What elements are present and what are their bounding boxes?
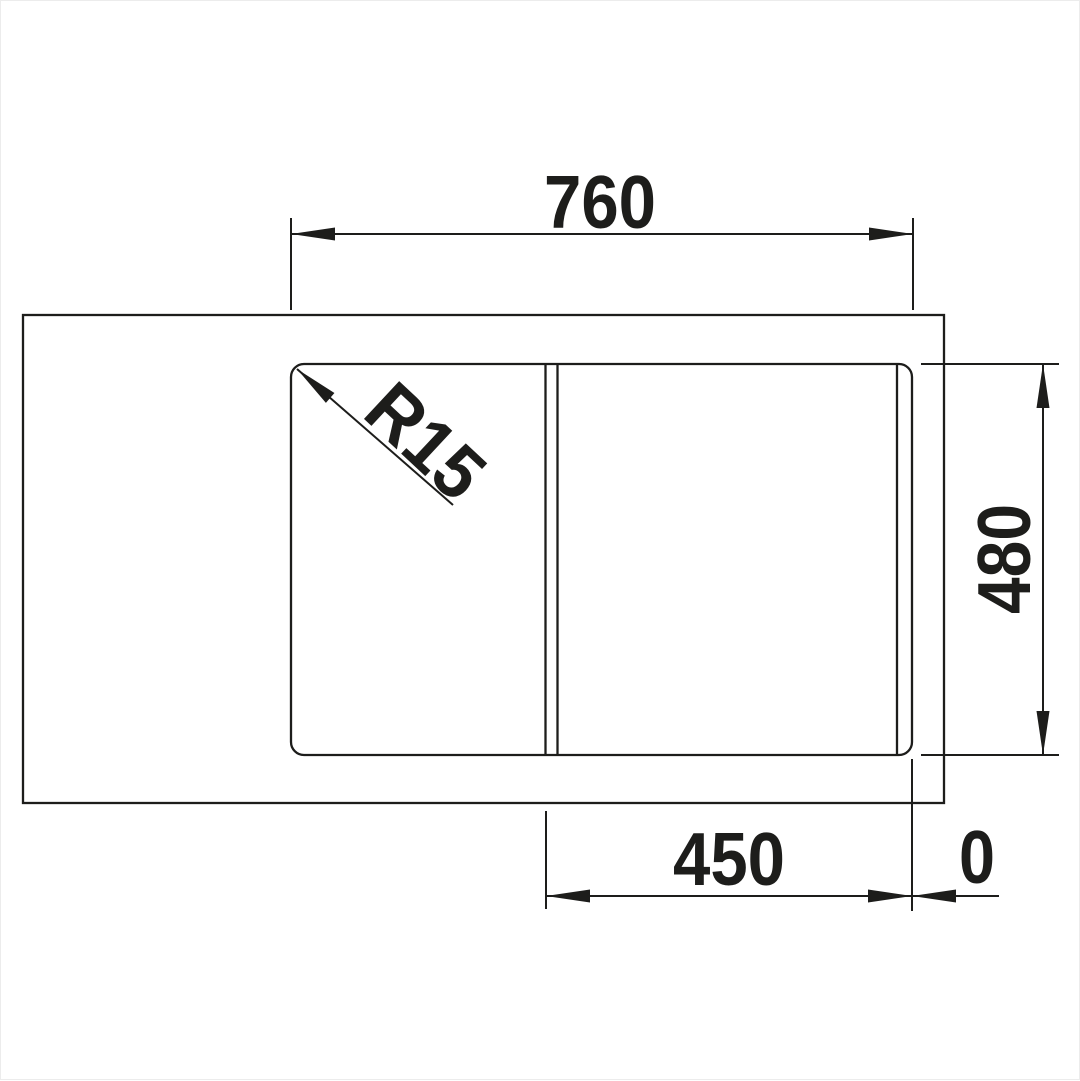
dimension-0-label: 0: [959, 815, 995, 899]
dimension-760-label: 760: [544, 160, 656, 244]
sink-outer-outline: [23, 315, 944, 803]
radius-label: R15: [350, 366, 502, 516]
dimension-480-label: 480: [962, 504, 1046, 614]
sink-geometry: [23, 315, 944, 803]
drawing-svg: 760 480 450 0 R15: [1, 1, 1080, 1081]
dimension-450-label: 450: [673, 817, 785, 901]
sink-dimension-drawing: 760 480 450 0 R15: [0, 0, 1080, 1080]
